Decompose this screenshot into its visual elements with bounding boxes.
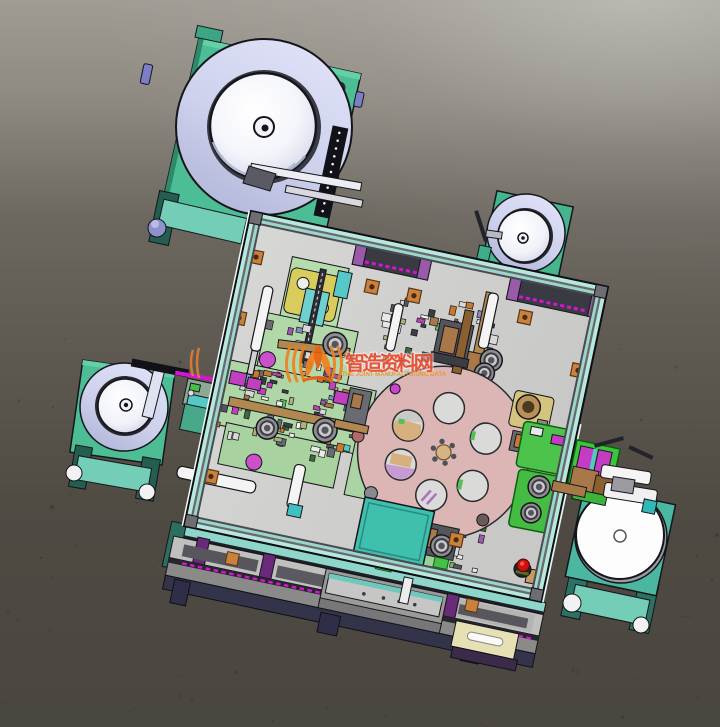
svg-text:THE JOINT MANUFACTURING DATA: THE JOINT MANUFACTURING DATA (342, 371, 446, 378)
